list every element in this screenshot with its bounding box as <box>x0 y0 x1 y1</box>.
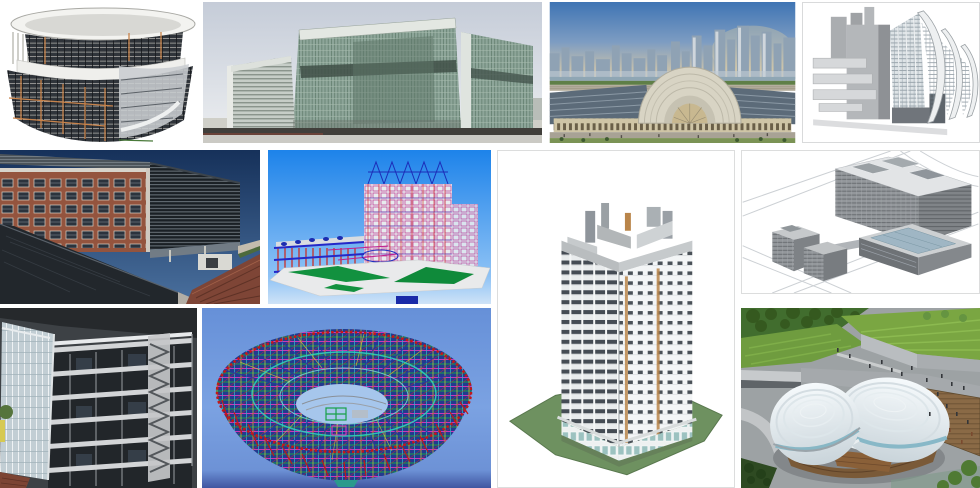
tile-residential-tower <box>497 150 735 488</box>
tile-sail-theater-model <box>802 2 980 143</box>
tile-convention-center <box>203 2 542 143</box>
isometric-site-illustration <box>742 151 979 293</box>
sail-theater-illustration <box>803 3 979 142</box>
tile-construction-bim-model <box>268 150 491 304</box>
stadium-frame-illustration <box>202 308 491 488</box>
render-gallery <box>0 0 980 488</box>
section-cutaway-illustration <box>0 308 197 488</box>
brick-building-illustration <box>0 150 260 304</box>
circular-building-illustration <box>1 2 198 143</box>
residential-tower-illustration <box>498 151 734 487</box>
domed-center-illustration <box>741 308 980 488</box>
tile-exhibition-hall-skyline <box>548 2 797 143</box>
tile-section-cutaway <box>0 308 197 488</box>
convention-center-illustration <box>203 2 542 143</box>
tile-stadium-bowl-frame <box>202 308 491 488</box>
tile-circular-glass-building <box>1 2 198 143</box>
tile-brick-office-building <box>0 150 260 304</box>
construction-bim-illustration <box>268 150 491 304</box>
exhibition-hall-illustration <box>548 2 797 143</box>
tile-isometric-site-model <box>741 150 980 294</box>
tile-domed-cultural-center <box>741 308 980 488</box>
